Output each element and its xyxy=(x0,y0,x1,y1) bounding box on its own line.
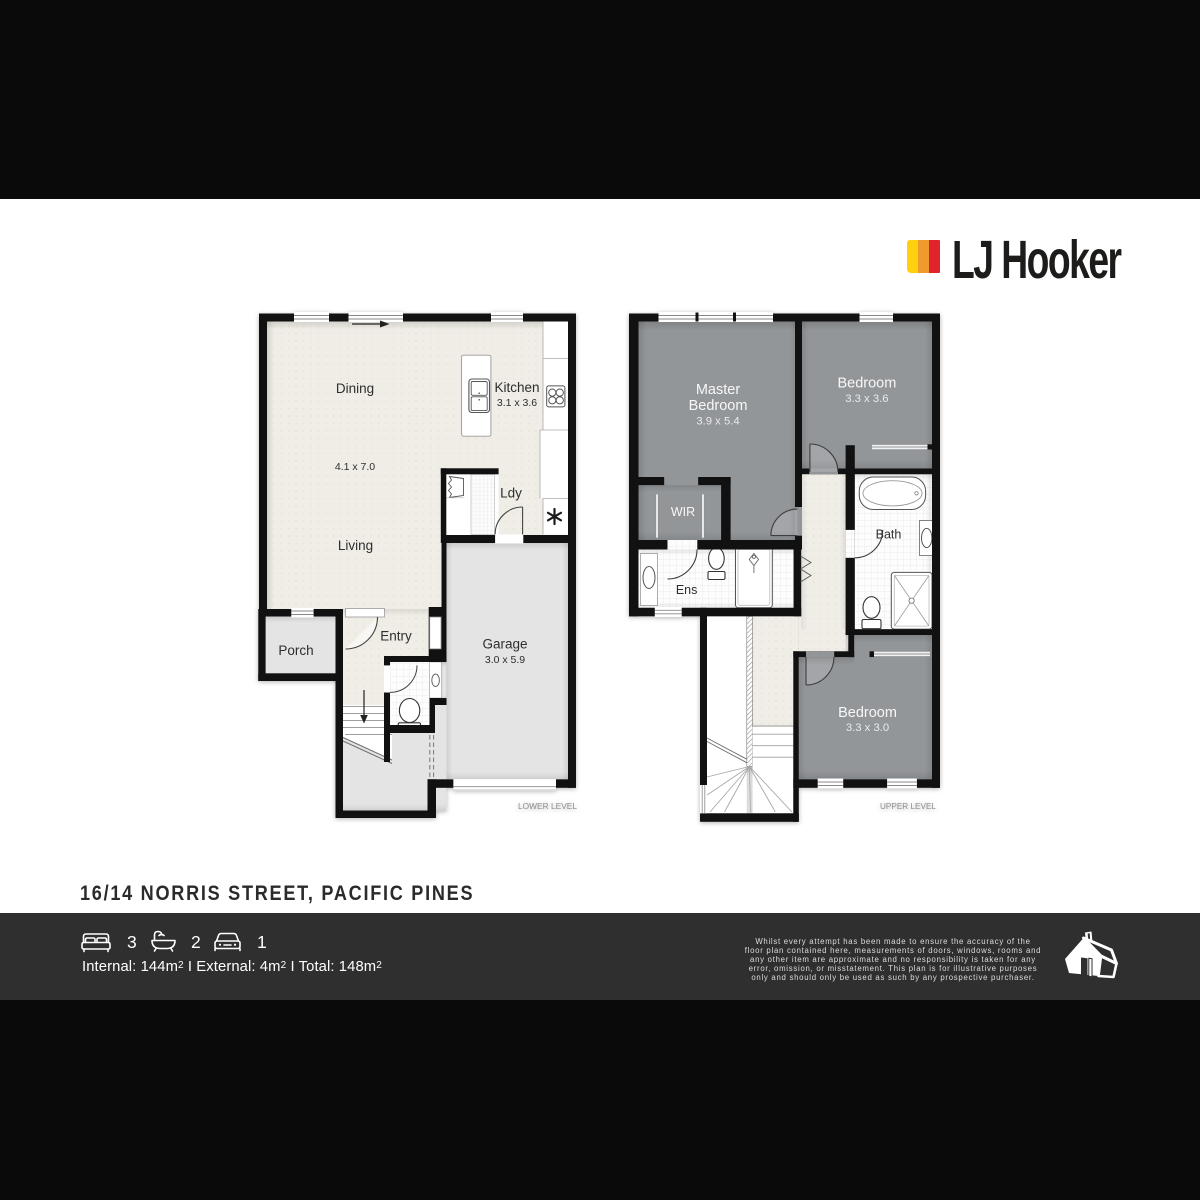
svg-text:Porch: Porch xyxy=(278,643,313,658)
svg-text:Kitchen: Kitchen xyxy=(494,380,539,395)
svg-text:4.1 x 7.0: 4.1 x 7.0 xyxy=(335,461,375,473)
svg-text:Master: Master xyxy=(696,382,740,398)
svg-text:Bath: Bath xyxy=(876,528,902,542)
svg-text:3.0 x 5.9: 3.0 x 5.9 xyxy=(485,654,525,666)
svg-text:Ens: Ens xyxy=(676,583,698,597)
svg-text:Dining: Dining xyxy=(336,381,374,396)
svg-text:Garage: Garage xyxy=(482,637,527,652)
svg-text:3.3 x 3.0: 3.3 x 3.0 xyxy=(846,722,889,734)
svg-text:3.9 x 5.4: 3.9 x 5.4 xyxy=(696,416,739,428)
svg-text:Bedroom: Bedroom xyxy=(838,705,897,721)
svg-text:Bedroom: Bedroom xyxy=(837,376,896,392)
svg-text:LOWER LEVEL: LOWER LEVEL xyxy=(518,801,577,811)
svg-text:Living: Living xyxy=(338,538,373,553)
svg-text:3.3 x 3.6: 3.3 x 3.6 xyxy=(845,393,888,405)
svg-text:Ldy: Ldy xyxy=(500,486,522,501)
svg-text:3.1 x 3.6: 3.1 x 3.6 xyxy=(497,397,537,409)
svg-text:Entry: Entry xyxy=(380,629,412,644)
svg-text:UPPER LEVEL: UPPER LEVEL xyxy=(880,801,936,811)
svg-text:WIR: WIR xyxy=(671,505,695,519)
svg-text:Bedroom: Bedroom xyxy=(689,398,748,414)
